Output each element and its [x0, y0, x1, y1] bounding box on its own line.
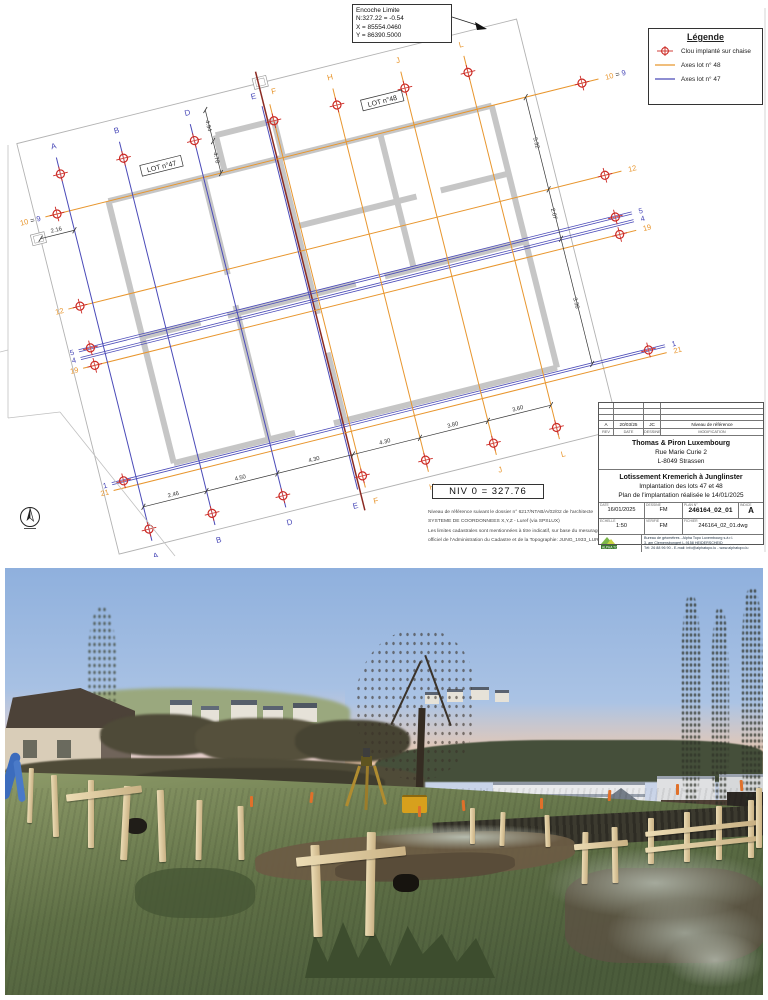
clou-marker [203, 504, 221, 522]
dimension-value: 2.07 [549, 208, 558, 220]
building-wall [334, 368, 557, 424]
row-axis-label: 19 [642, 222, 652, 233]
project-title: Lotissement Kremerich à Junglinster [599, 474, 763, 481]
tripod-head [361, 756, 372, 766]
clou-marker [573, 74, 591, 92]
building-wall [492, 106, 557, 368]
dimension-tick [558, 236, 564, 242]
firm-contact: Tél: 26 88 96 90 - E-mail: info@alphatop… [644, 546, 761, 551]
index-cell: INDICE A [739, 503, 763, 518]
column-axis-label: F [270, 86, 277, 96]
neighbour-boundary-line [60, 412, 175, 556]
revision-row: A 20/03/25 JC Niveau de référence [599, 421, 763, 429]
clou-marker [596, 166, 614, 184]
revision-index: A [599, 421, 614, 428]
row-axis-label: 21 [672, 345, 682, 356]
client-city: L-8049 Strassen [599, 458, 763, 465]
site-plan-sheet: 10 = 910 = 9121255441919112121AABBDDEEFF… [0, 0, 768, 557]
index-value: A [739, 506, 763, 515]
boundary-notch [30, 232, 46, 246]
distant-house [495, 690, 509, 702]
big-tree-crown [355, 630, 475, 780]
stake [238, 806, 245, 860]
plan-number-value: 246164_02_01 [683, 507, 738, 514]
left-house-window [23, 740, 37, 758]
parcel-boundary [17, 19, 619, 554]
alpha-topo-logo-icon: ALPHA TOPO [599, 535, 641, 551]
building-wall [328, 353, 345, 421]
stake [756, 788, 762, 848]
survey-instrument [363, 748, 370, 757]
column-axis-label: L [458, 40, 465, 50]
dark-bag [393, 874, 419, 892]
column-axis-label: L [560, 449, 567, 459]
clou-marker [140, 520, 158, 538]
row-axis-label: 4 [71, 355, 77, 365]
dimension-tick [203, 488, 209, 494]
column-axis-label: B [113, 126, 120, 136]
revision-author: JC [644, 421, 661, 428]
clou-marker [86, 356, 104, 374]
frost-patch [365, 824, 565, 850]
legend-box: Légende Clou implanté sur chaise Axes lo… [648, 28, 763, 105]
row-axis-label: 4 [640, 214, 646, 224]
callout-line: Encoche Limite [356, 7, 448, 15]
stake [195, 800, 202, 860]
clou-marker [328, 96, 346, 114]
stake [544, 815, 550, 847]
dimension-tick [485, 418, 491, 424]
building-wall [279, 159, 318, 314]
legend-item-lot47: Axes lot n° 47 [654, 74, 757, 84]
scale-cell: ECHELLE 1:50 [599, 519, 645, 534]
fence-post [748, 800, 754, 858]
clou-marker [547, 418, 565, 436]
clou-marker [639, 341, 657, 359]
row-axis-label: 21 [100, 487, 110, 498]
column-axis-label: H [326, 72, 334, 82]
orange-flag [540, 798, 543, 809]
scale-value: 1:50 [599, 523, 644, 529]
column-axis-line [262, 106, 358, 489]
stake [470, 808, 475, 844]
meta-row-1: DATE 16/01/2025 DESSINE FM PLAN N° 24616… [599, 503, 763, 519]
clou-marker [51, 165, 69, 183]
clou-marker [81, 339, 99, 357]
column-axis-label: D [184, 108, 192, 118]
checked-cell: VERIFIE FM [645, 519, 683, 534]
legend-item-label: Axes lot n° 48 [681, 62, 721, 69]
header-by: DESSINE [644, 429, 661, 435]
note-line: Les limites cadastrales sont mentionnées… [428, 527, 606, 546]
clou-marker [185, 131, 203, 149]
client-address: Rue Marie Curie 2 [599, 449, 763, 456]
poplar-tree [741, 588, 763, 813]
legend-item-label: Clou implanté sur chaise [681, 48, 751, 55]
row-axis-label: 12 [54, 306, 64, 317]
building-wall [216, 121, 274, 136]
encoche-limite-callout: Encoche Limite N:327.22 = -0.54 X = 8555… [352, 4, 452, 43]
clou-marker [114, 149, 132, 167]
clou-marker [459, 63, 477, 81]
clou-marker [48, 205, 66, 223]
file-cell: FICHIER 246164_02_01.dwg [683, 519, 763, 534]
row-axis-line [112, 345, 665, 483]
column-axis-label: A [50, 141, 58, 151]
orange-flag [250, 796, 253, 807]
title-block: A 20/03/25 JC Niveau de référence REV DA… [598, 402, 764, 545]
dimension-tick [202, 107, 208, 113]
header-rev: REV [599, 429, 614, 435]
column-axis-label: D [286, 517, 294, 527]
revision-description: Niveau de référence [661, 421, 763, 428]
clou-marker [611, 225, 629, 243]
north-compass [21, 508, 40, 529]
clou-marker [274, 487, 292, 505]
file-value: 246164_02_01.dwg [683, 523, 763, 529]
niv-reference-box: NIV 0 = 327.76 [432, 484, 544, 499]
dimension-tick [546, 186, 552, 192]
callout-arrowhead [475, 22, 487, 30]
svg-text:ALPHA TOPO: ALPHA TOPO [602, 545, 623, 549]
firm-row: ALPHA TOPO Bureau de géomètres - Alpha T… [599, 535, 763, 552]
header-modification: MODIFICATION [661, 429, 763, 435]
clou-marker [71, 297, 89, 315]
note-line: SYSTEME DE COORDONNEES X,Y,Z - Luref (vi… [428, 517, 606, 526]
dimension-tick [140, 504, 146, 510]
column-axis-label: J [395, 56, 401, 66]
project-subtitle: Implantation des lots 47 et 48 [599, 483, 763, 490]
stake [88, 780, 94, 848]
column-axis-label: B [215, 535, 222, 545]
note-line: Niveau de référence suivant le dossier n… [428, 508, 606, 517]
callout-line: X = 85554.0460 [356, 24, 448, 32]
chaise-post [612, 827, 619, 883]
header-date: DATE [614, 429, 644, 435]
legend-item-clou: Clou implanté sur chaise [654, 46, 757, 56]
frost-patch [665, 932, 763, 988]
boundary-notch [252, 75, 268, 89]
project-block: Lotissement Kremerich à Junglinster Impl… [599, 470, 763, 503]
drawn-cell: DESSINE FM [645, 503, 683, 518]
fence-post [648, 818, 654, 864]
grass-tuft [135, 868, 255, 918]
column-axis-label: F [372, 496, 379, 506]
checked-value: FM [645, 523, 682, 529]
date-cell: DATE 16/01/2025 [599, 503, 645, 518]
orange-flag [418, 806, 421, 817]
chaise-post [582, 832, 589, 884]
callout-line: Y = 86390.5000 [356, 32, 448, 40]
plan-notes: Niveau de référence suivant le dossier n… [428, 508, 606, 545]
callout-line: N:327.22 = -0.54 [356, 15, 448, 23]
building-wall [441, 174, 509, 191]
row-axis-label: 19 [69, 365, 79, 376]
firm-text: Bureau de géomètres - Alpha Topo Luxembo… [642, 535, 763, 552]
dimension-tick [417, 435, 423, 441]
dimension-value: 5.32 [531, 137, 540, 149]
plan-number-cell: PLAN N° 246164_02_01 [683, 503, 739, 518]
fence-post [716, 806, 722, 860]
meta-row-2: ECHELLE 1:50 VERIFIE FM FICHIER 246164_0… [599, 519, 763, 535]
legend-item-lot48: Axes lot n° 48 [654, 60, 757, 70]
dimension-tick [548, 402, 554, 408]
row-axis-line [114, 353, 667, 491]
row-axis-line [112, 347, 665, 485]
legend-item-label: Axes lot n° 47 [681, 76, 721, 83]
poplar-tree [711, 608, 729, 813]
dimension-value: 4.78 [211, 152, 220, 164]
column-axis-label: E [250, 91, 257, 101]
clou-marker [416, 451, 434, 469]
page: 10 = 910 = 9121255441919112121AABBDDEEFF… [0, 0, 768, 1000]
neighbour-boundary-line [8, 412, 60, 418]
dimension-tick [71, 227, 77, 233]
neighbour-boundary-line [0, 350, 8, 352]
poplar-tree [681, 596, 701, 811]
legend-title: Légende [653, 32, 758, 42]
client-block: Thomas & Piron Luxembourg Rue Marie Curi… [599, 436, 763, 470]
chaise-post [365, 832, 376, 936]
lot47-line-icon [654, 74, 676, 84]
clou-marker [484, 434, 502, 452]
client-name: Thomas & Piron Luxembourg [599, 440, 763, 447]
dimension-value: 4.94 [203, 120, 212, 133]
row-axis-label: 12 [627, 163, 637, 174]
alpha-topo-logo: ALPHA TOPO [599, 535, 642, 552]
column-axis-label: J [497, 465, 503, 475]
lot48-line-icon [654, 60, 676, 70]
revision-date: 20/03/25 [614, 421, 644, 428]
revision-header-row: REV DATE DESSINE MODIFICATION [599, 429, 763, 436]
left-house-window [57, 740, 71, 758]
dimension-tick [523, 94, 529, 100]
row-axis-label: 10 = 9 [604, 68, 627, 82]
fence-post [684, 812, 690, 862]
date-value: 16/01/2025 [599, 507, 644, 513]
dimension-tick [589, 361, 595, 367]
clou-marker [114, 472, 132, 490]
orange-flag [676, 784, 679, 795]
column-axis-label: E [352, 501, 359, 511]
instrument-case [402, 795, 427, 813]
row-axis-label: 10 = 9 [19, 214, 42, 228]
building-wall [228, 284, 356, 316]
clou-marker-icon [654, 46, 676, 56]
column-axis-label: A [152, 551, 160, 557]
drawn-value: FM [645, 507, 682, 513]
dimension-tick [274, 470, 280, 476]
dimension-value: 3.36 [571, 297, 580, 309]
building-wall [174, 433, 295, 463]
clou-marker [606, 208, 624, 226]
site-photo [5, 568, 763, 995]
project-description: Plan de l'implantation réalisée le 14/01… [599, 492, 763, 499]
